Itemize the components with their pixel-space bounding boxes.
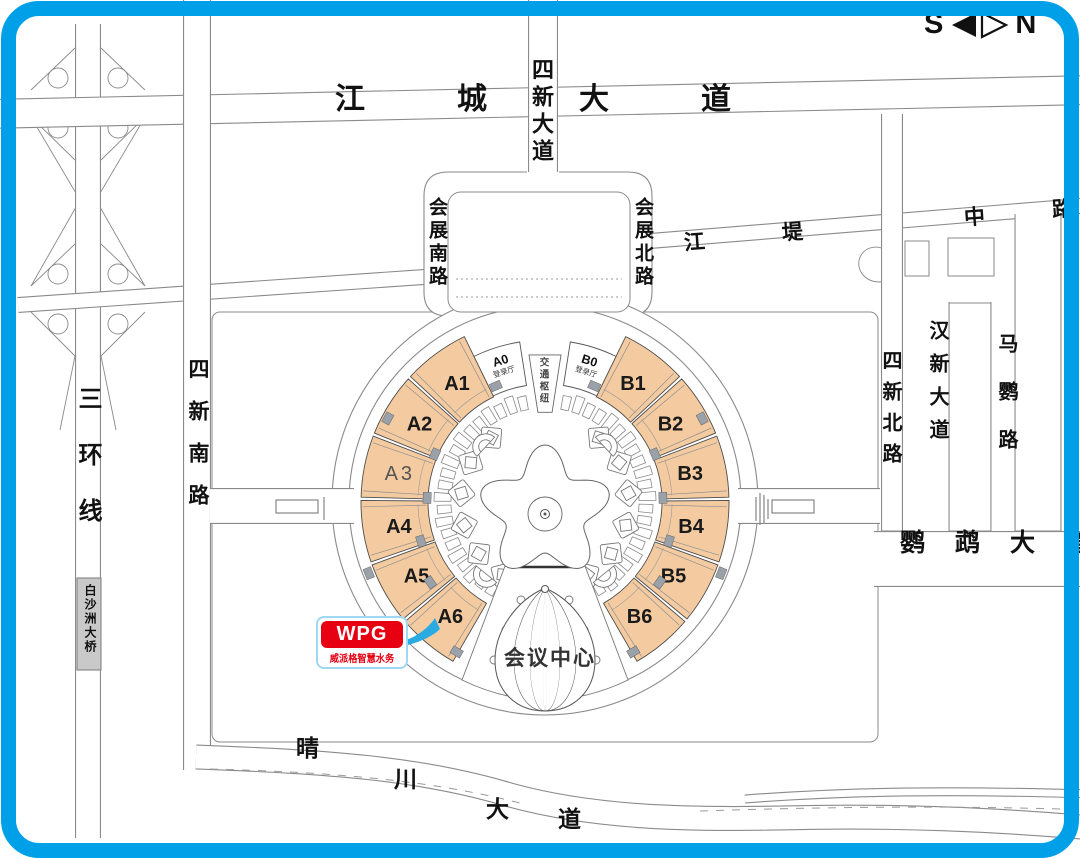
map-label-道: 道 bbox=[558, 808, 581, 831]
hall-label-A3: A3 bbox=[385, 463, 415, 485]
wpg-callout-arrow bbox=[404, 614, 448, 648]
compass: S N bbox=[924, 8, 1036, 41]
map-label-三环线: 三环线 bbox=[75, 386, 99, 554]
map-label-四新南路: 四新南路 bbox=[187, 358, 208, 526]
map-label-马鹦路: 马鹦路 bbox=[996, 333, 1016, 477]
map-label-四新大道: 四新大道 bbox=[530, 58, 552, 166]
pavilion-inner bbox=[465, 457, 477, 469]
map-label-会展南路: 会展南路 bbox=[427, 197, 446, 289]
pavilion-inner bbox=[604, 547, 617, 560]
hall-label-A5: A5 bbox=[404, 565, 430, 587]
entrance-plaza bbox=[448, 192, 630, 312]
balloon-knot bbox=[542, 586, 549, 593]
map-label-鹦鹉大道: 鹦鹉大道 bbox=[900, 531, 1080, 556]
compass-south-label: S bbox=[924, 8, 943, 41]
map-label-交通枢纽: 交通枢纽 bbox=[538, 357, 548, 405]
hall-label-B5: B5 bbox=[661, 565, 687, 587]
wpg-logo: WPG 威派格智慧水务 bbox=[316, 616, 408, 669]
map-label-江城大道: 江城大道 bbox=[335, 85, 823, 115]
map-label-堤: 堤 bbox=[781, 221, 803, 243]
compass-north-label: N bbox=[1015, 8, 1036, 41]
map-label-会展北路: 会展北路 bbox=[633, 197, 652, 289]
ring-corridor-segment bbox=[639, 504, 654, 513]
map-label-大: 大 bbox=[486, 798, 509, 821]
map-stage: A1A2A3A4A5A6B1B2B3B4B5B6A0登录厅B0登录厅 江城大道四… bbox=[0, 0, 1080, 859]
connector-block bbox=[659, 492, 667, 503]
connector-block bbox=[423, 492, 431, 503]
wpg-logo-box: WPG 威派格智慧水务 bbox=[316, 616, 408, 669]
map-label-江: 江 bbox=[683, 231, 705, 253]
hall-label-B3: B3 bbox=[677, 463, 703, 485]
map-label-晴: 晴 bbox=[296, 737, 319, 760]
small-blocks bbox=[905, 238, 994, 276]
map-label-川: 川 bbox=[394, 768, 417, 791]
hall-label-B1: B1 bbox=[620, 373, 646, 395]
map-label-会议中心: 会议中心 bbox=[504, 648, 596, 669]
hall-label-A2: A2 bbox=[407, 414, 433, 436]
connector-rect bbox=[659, 492, 667, 503]
map-label-白沙洲大桥: 白沙洲大桥 bbox=[84, 584, 96, 654]
map-label-四新北路: 四新北路 bbox=[880, 350, 900, 474]
map-label-汉新大道: 汉新大道 bbox=[927, 320, 947, 452]
wpg-brand-plate: WPG bbox=[321, 621, 403, 648]
hall-label-A1: A1 bbox=[444, 373, 470, 395]
pavilion-inner-g bbox=[465, 457, 477, 469]
flower-center-dot bbox=[544, 513, 547, 516]
hall-label-A4: A4 bbox=[386, 516, 412, 538]
compass-needle-icon bbox=[948, 10, 1010, 40]
pavilion-inner-g bbox=[604, 547, 617, 560]
connector-rect bbox=[423, 492, 431, 503]
pavilion-inner-g bbox=[620, 519, 632, 531]
hall-label-B2: B2 bbox=[658, 414, 684, 436]
wpg-brand-text: WPG bbox=[337, 623, 388, 646]
hall-label-B6: B6 bbox=[627, 606, 653, 628]
pavilion-inner bbox=[620, 519, 632, 531]
hall-label-B4: B4 bbox=[678, 516, 704, 538]
ring-corridor-segment bbox=[437, 505, 452, 514]
map-label-路: 路 bbox=[1051, 198, 1073, 220]
pavilion-icon bbox=[600, 543, 622, 565]
map-label-中: 中 bbox=[963, 206, 985, 228]
wpg-subtitle: 威派格智慧水务 bbox=[324, 650, 399, 665]
pavilion-icon bbox=[468, 543, 490, 565]
